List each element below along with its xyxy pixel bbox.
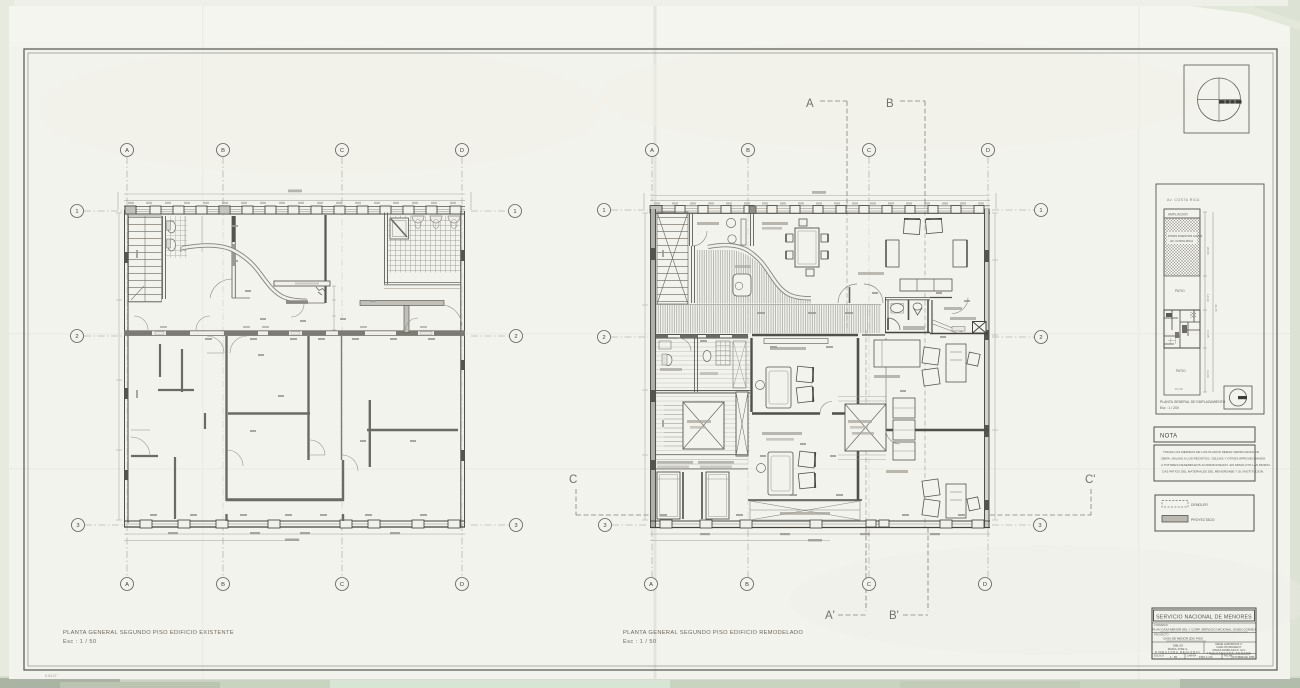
svg-text:C: C: [867, 582, 871, 588]
svg-text:LAMINA: LAMINA: [1187, 655, 1197, 658]
svg-text:ESCALA: ESCALA: [1154, 655, 1164, 658]
svg-text:PATIO: PATIO: [1175, 289, 1185, 293]
svg-text:CAS PATIOS DEL MATERIALES DEL: CAS PATIOS DEL MATERIALES DEL MENORSABE …: [1162, 470, 1264, 474]
svg-text:TODAS LAS MEDIDAS DE LOS PLANO: TODAS LAS MEDIDAS DE LOS PLANOS SERAN VE…: [1163, 450, 1259, 454]
svg-text:Esc : 1 / 50: Esc : 1 / 50: [623, 639, 657, 645]
svg-text:1: 1: [602, 208, 605, 214]
svg-text:CASA DE MENOR 2DO PISO: CASA DE MENOR 2DO PISO: [1163, 637, 1204, 641]
svg-text:D: D: [460, 148, 464, 154]
svg-text:3: 3: [76, 523, 79, 529]
svg-text:C': C': [1085, 474, 1096, 486]
svg-text:1: 1: [513, 209, 516, 215]
svg-text:14.00: 14.00: [1206, 294, 1210, 302]
svg-text:PISOS PUESTOS HACIA: PISOS PUESTOS HACIA: [1168, 234, 1202, 238]
svg-text:OCTUBRE DE 1995: OCTUBRE DE 1995: [1231, 655, 1255, 659]
svg-text:A: A: [650, 148, 654, 154]
svg-text:3: 3: [1038, 523, 1041, 529]
svg-text:A: A: [125, 582, 129, 588]
svg-text:1 : 50: 1 : 50: [1170, 655, 1177, 659]
svg-text:Esc : 1 / 200: Esc : 1 / 200: [1160, 406, 1179, 410]
svg-text:PLANTA GENERAL DE EMPLAZAMIENT: PLANTA GENERAL DE EMPLAZAMIENTO: [1160, 400, 1226, 404]
svg-text:2: 2: [1039, 335, 1042, 341]
svg-text:2: 2: [602, 335, 605, 341]
svg-text:1: 1: [1039, 208, 1042, 214]
svg-text:DEMOLER: DEMOLER: [1191, 503, 1208, 507]
svg-text:A': A': [825, 610, 835, 622]
svg-text:2: 2: [75, 334, 78, 340]
svg-text:13.00: 13.00: [1206, 370, 1210, 378]
svg-text:PLANTA GENERAL SEGUNDO PISO ED: PLANTA GENERAL SEGUNDO PISO EDIFICIO REM…: [623, 630, 803, 636]
svg-text:17.05: 17.05: [1206, 330, 1210, 338]
svg-text:3: 3: [514, 523, 517, 529]
svg-text:PLAN CASA MENOR DEL Y CORP. SE: PLAN CASA MENOR DEL Y CORP. SERVICIO NAC…: [1153, 628, 1256, 632]
svg-text:D: D: [986, 148, 990, 154]
svg-text:28.80: 28.80: [1206, 247, 1210, 255]
svg-text:C: C: [569, 474, 577, 486]
svg-text:C: C: [340, 148, 344, 154]
svg-text:PISO 2 / 05: PISO 2 / 05: [1199, 655, 1213, 659]
svg-text:9.34.27: 9.34.27: [45, 674, 57, 678]
svg-text:A: A: [125, 148, 129, 154]
svg-text:SERVICIO NACIONAL DE MENORES: SERVICIO NACIONAL DE MENORES: [1156, 614, 1252, 620]
svg-text:CONVENIO: CONVENIO: [1154, 623, 1168, 627]
svg-text:C: C: [867, 148, 871, 154]
svg-text:Esc : 1 / 50: Esc : 1 / 50: [63, 639, 97, 645]
svg-text:B: B: [886, 98, 894, 110]
svg-text:PROYECTADO: PROYECTADO: [1191, 518, 1215, 522]
svg-text:B: B: [746, 148, 750, 154]
svg-text:B: B: [745, 582, 749, 588]
svg-text:2: 2: [514, 334, 517, 340]
svg-text:Av. COSTA RICA: Av. COSTA RICA: [1167, 198, 1200, 202]
svg-text:10.30: 10.30: [1175, 387, 1183, 391]
svg-text:1: 1: [75, 209, 78, 215]
svg-text:3: 3: [603, 523, 606, 529]
svg-text:B: B: [221, 148, 225, 154]
svg-text:D: D: [983, 582, 987, 588]
svg-text:AMPLIACION: AMPLIACION: [1168, 213, 1188, 217]
svg-text:D: D: [460, 582, 464, 588]
svg-text:NOTA: NOTA: [1160, 434, 1177, 440]
svg-text:A: A: [806, 98, 814, 110]
svg-text:OBRA, SALVAS A LOS RECINTOS. C: OBRA, SALVAS A LOS RECINTOS. CELDAS Y OT…: [1161, 457, 1266, 461]
svg-text:A: A: [649, 582, 653, 588]
svg-text:B: B: [221, 582, 225, 588]
svg-text:C: C: [340, 582, 344, 588]
svg-text:B': B': [889, 610, 899, 622]
svg-text:A TOTORES DESEMPLEOS ACONDICIO: A TOTORES DESEMPLEOS ACONDICIONADO. EN A…: [1161, 463, 1271, 467]
svg-text:AV. COSTA RICA: AV. COSTA RICA: [1170, 239, 1193, 243]
svg-text:PATIO: PATIO: [1176, 369, 1186, 373]
svg-text:PLANTA GENERAL SEGUNDO PISO ED: PLANTA GENERAL SEGUNDO PISO EDIFICIO EXI…: [63, 630, 234, 636]
svg-text:44.35: 44.35: [1214, 304, 1218, 312]
